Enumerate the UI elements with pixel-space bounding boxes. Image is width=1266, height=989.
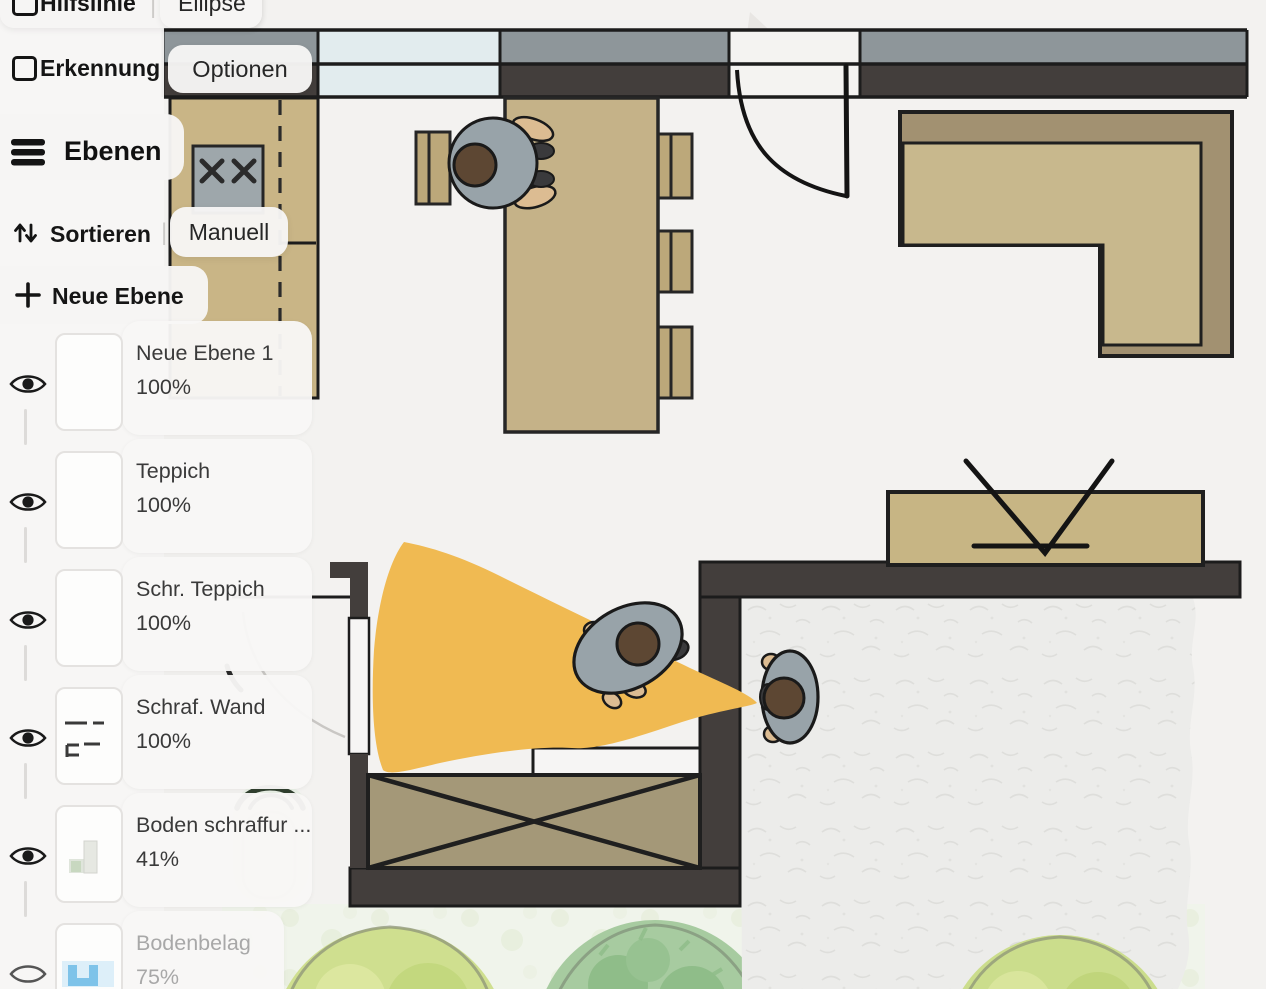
layer-thumbnail[interactable]: [55, 805, 123, 903]
layer-opacity: 41%: [136, 847, 179, 872]
layer-visibility-toggle[interactable]: [8, 843, 46, 869]
layer-connector-line: [24, 527, 27, 563]
layer-row: Bodenbelag 75%: [0, 923, 330, 989]
layers-panel-overlay: Hilfslinie | Ellipse Erkennung Optionen …: [0, 0, 1266, 989]
guide-mode-button[interactable]: Ellipse: [160, 0, 262, 28]
layer-connector-line: [24, 645, 27, 681]
layer-visibility-toggle[interactable]: [8, 961, 46, 987]
layer-opacity: 100%: [136, 611, 191, 636]
app-window: { "toolbar": { "guide": { "label": "Hilf…: [0, 0, 1266, 989]
guide-icon: [12, 0, 38, 16]
separator: |: [150, 0, 156, 20]
layer-name: Neue Ebene 1: [136, 341, 273, 366]
thumbnail-blue-u: [57, 925, 121, 989]
layer-thumbnail[interactable]: [55, 923, 123, 989]
layer-row: Neue Ebene 1 100%: [0, 333, 330, 451]
thumbnail-blocks: [57, 807, 121, 901]
layer-opacity: 100%: [136, 493, 191, 518]
layer-name: Schr. Teppich: [136, 577, 265, 602]
layer-name: Boden schraffur ...: [136, 813, 311, 838]
sort-mode-label: Manuell: [170, 207, 288, 257]
plus-icon: [15, 282, 41, 308]
new-layer-label: Neue Ebene: [52, 283, 184, 310]
layer-row: Schr. Teppich 100%: [0, 569, 330, 687]
layer-visibility-toggle[interactable]: [8, 725, 46, 751]
layer-connector-line: [24, 409, 27, 445]
guide-label: Hilfslinie: [40, 0, 136, 17]
detection-label: Erkennung: [40, 55, 160, 82]
layers-icon: [10, 139, 50, 169]
panel-title: Ebenen: [64, 136, 162, 167]
layer-name: Schraf. Wand: [136, 695, 265, 720]
layer-connector-line: [24, 881, 27, 917]
layer-row: Schraf. Wand 100%: [0, 687, 330, 805]
layer-thumbnail[interactable]: [55, 333, 123, 431]
layer-thumbnail[interactable]: [55, 569, 123, 667]
layer-name: Bodenbelag: [136, 931, 251, 956]
detection-options-label: Optionen: [168, 45, 312, 93]
eye-icon: [8, 607, 48, 633]
eye-icon: [8, 371, 48, 397]
separator: |: [161, 219, 167, 247]
layer-opacity: 100%: [136, 729, 191, 754]
eye-closed-icon: [8, 961, 48, 987]
layer-visibility-toggle[interactable]: [8, 371, 46, 397]
thumbnail-dashes: [57, 689, 121, 783]
eye-icon: [8, 725, 48, 751]
layer-row: Boden schraffur ... 41%: [0, 805, 330, 923]
detection-options-button[interactable]: Optionen: [168, 45, 312, 93]
guide-mode-label: Ellipse: [178, 0, 246, 17]
sort-label[interactable]: Sortieren: [50, 221, 151, 248]
layer-visibility-toggle[interactable]: [8, 607, 46, 633]
layer-opacity: 100%: [136, 375, 191, 400]
layer-opacity: 75%: [136, 965, 179, 989]
eye-icon: [8, 843, 48, 869]
sort-icon: [12, 219, 40, 247]
layer-row: Teppich 100%: [0, 451, 330, 569]
sort-mode-button[interactable]: Manuell: [170, 207, 288, 257]
layer-visibility-toggle[interactable]: [8, 489, 46, 515]
eye-icon: [8, 489, 48, 515]
layer-thumbnail[interactable]: [55, 451, 123, 549]
layer-thumbnail[interactable]: [55, 687, 123, 785]
detection-icon: [12, 56, 37, 81]
layer-name: Teppich: [136, 459, 210, 484]
layer-connector-line: [24, 763, 27, 799]
